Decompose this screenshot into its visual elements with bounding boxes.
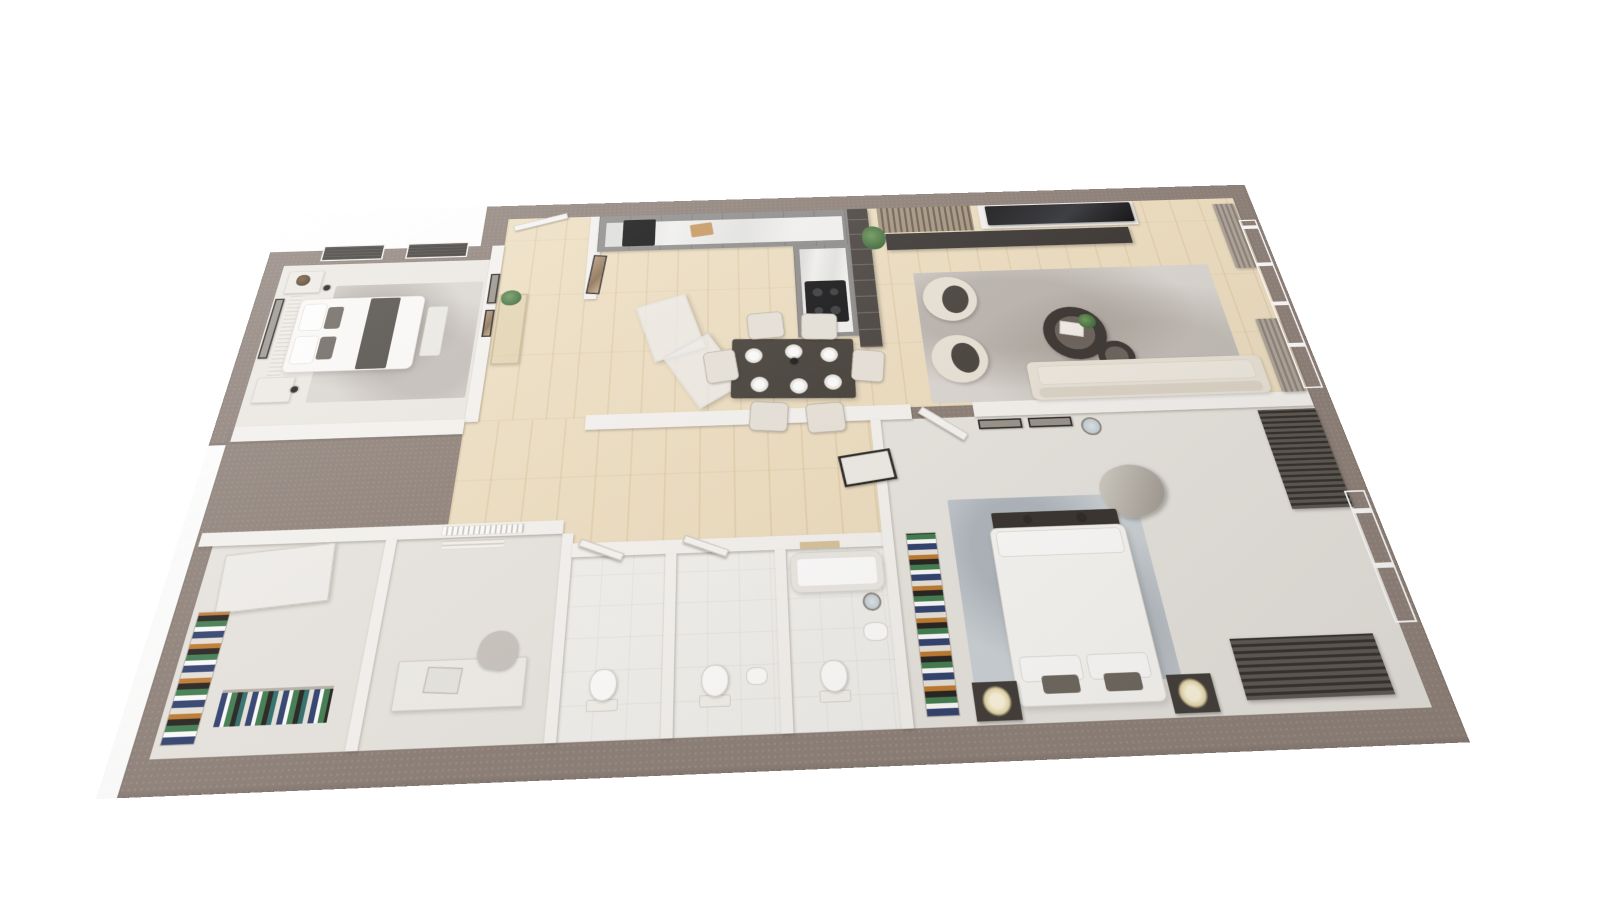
bedroom-left-window-blind-2: [405, 242, 470, 259]
master-wall-art-2: [1027, 416, 1072, 427]
dining-chair-6: [851, 349, 885, 383]
master-louver-bottom: [1229, 633, 1395, 700]
master-duvet-fold: [995, 527, 1126, 557]
living-slat-panel: [876, 206, 974, 233]
dining-chair-4: [805, 401, 847, 433]
dining-chair-2: [801, 313, 838, 339]
dining-chair-3: [749, 401, 789, 432]
bathroom3-bathtub: [789, 549, 886, 593]
master-cushion-2: [1103, 672, 1144, 692]
floorplan-page: [0, 0, 1600, 900]
bathroom1-floor: [556, 554, 666, 743]
study-laptop: [422, 667, 463, 694]
bedroom-left-window-blind-1: [320, 244, 386, 261]
living-sofa: [1026, 355, 1273, 400]
bathroom2-sink: [746, 667, 768, 686]
master-wall-art-1: [978, 418, 1023, 429]
bathroom3-shelf-niche: [800, 541, 840, 549]
dining-chair-1: [746, 311, 785, 340]
master-cushion-1: [1041, 674, 1081, 694]
closet-hanging-clothes: [213, 686, 334, 728]
bathroom2-floor: [673, 550, 782, 738]
bathroom3-sink: [863, 622, 889, 642]
kitchen-oven: [622, 219, 656, 246]
bedroom-left-nightstand-2: [250, 377, 296, 404]
floorplan-3d-render: [96, 185, 1470, 799]
dining-chair-5: [702, 348, 739, 384]
